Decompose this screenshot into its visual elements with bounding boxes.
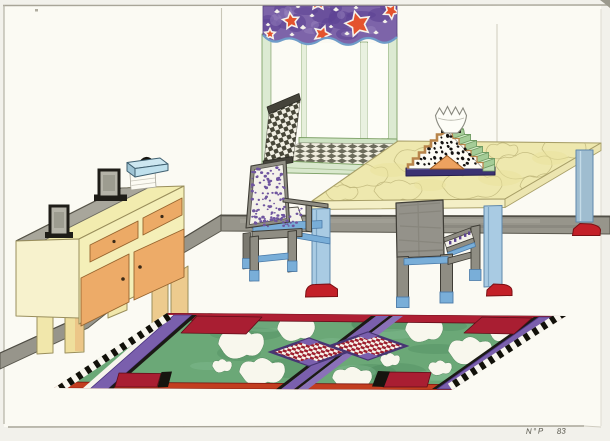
svg-text:83: 83 xyxy=(557,426,567,436)
svg-text:N°P: N°P xyxy=(526,426,545,436)
